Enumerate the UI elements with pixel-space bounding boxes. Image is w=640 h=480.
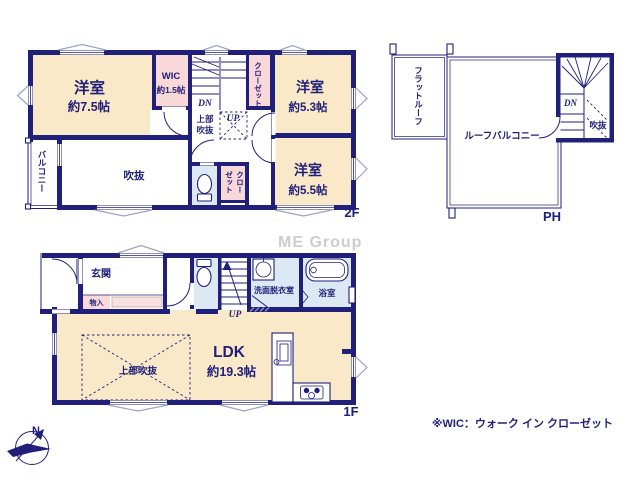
floor-plan-ph: フラットルーフ ルーフバルコニー DN 吹抜 PH (390, 44, 614, 224)
label-ph-void: 吹抜 (589, 120, 607, 130)
label-1f-ldk-name: LDK (213, 344, 246, 361)
label-2f-upper-void-2: 吹抜 (196, 125, 214, 135)
label-1f-upper-void: 上部吹抜 (119, 365, 158, 377)
floor-plan-drawing: 洋室 約7.5帖 WIC 約1.5帖 洋室 約5.3帖 洋室 約5.5帖 吹抜 … (0, 0, 640, 480)
shoe-counter-1f (112, 297, 162, 307)
floor-plan-page: 洋室 約7.5帖 WIC 約1.5帖 洋室 約5.3帖 洋室 約5.5帖 吹抜 … (0, 0, 640, 480)
label-2f-closet-small-col1: クロー (236, 171, 245, 194)
label-ph-roof-balcony: ルーフバルコニー (464, 130, 539, 142)
label-2f-balcony: バルコニー (37, 149, 47, 192)
label-1f-entrance: 玄関 (91, 267, 111, 280)
watermark: ME Group (278, 234, 362, 251)
label-floor-ph: PH (543, 209, 561, 224)
wic-note: ※WIC：ウォーク イン クローゼット (432, 416, 613, 430)
floor-plan-2f: 洋室 約7.5帖 WIC 約1.5帖 洋室 約5.3帖 洋室 約5.5帖 吹抜 … (18, 45, 368, 221)
label-2f-bedroom-a-size: 約7.5帖 (68, 99, 111, 114)
label-2f-wic-size: 約1.5帖 (157, 85, 186, 95)
label-2f-stairs-up: UP (227, 114, 240, 124)
label-2f-bedroom-c-name: 洋室 (294, 162, 322, 178)
label-1f-bathroom: 浴室 (318, 288, 336, 298)
label-1f-stairs-up: UP (229, 310, 242, 320)
label-2f-wic-name: WIC (162, 71, 181, 82)
label-2f-closet-hall: クローゼット (253, 62, 262, 108)
label-2f-bedroom-a-name: 洋室 (74, 78, 105, 97)
toilet-icon-2f (198, 175, 212, 202)
toilet-icon-1f (197, 260, 211, 287)
label-2f-upper-void-1: 上部 (196, 114, 214, 124)
label-ph-stairs-dn: DN (563, 98, 577, 108)
label-1f-ldk-size: 約19.3帖 (207, 364, 257, 379)
label-2f-bedroom-b-name: 洋室 (296, 79, 324, 95)
compass: N (7, 425, 51, 465)
label-1f-washroom: 洗面脱衣室 (254, 285, 294, 295)
label-floor-1f: 1F (343, 404, 358, 419)
floor-plan-1f: 玄関 物入 LDK 約19.3帖 上部吹抜 洗面脱衣室 浴室 UP 1F (40, 246, 367, 420)
label-floor-2f: 2F (344, 205, 359, 220)
label-2f-stairs-dn: DN (197, 99, 213, 109)
sink-icon-1f (253, 256, 274, 280)
label-2f-void: 吹抜 (124, 169, 145, 182)
label-1f-storage: 物入 (90, 298, 104, 307)
label-2f-closet-small-col2: ゼット (224, 170, 233, 194)
label-ph-flat-roof: フラットルーフ (414, 66, 424, 126)
label-2f-bedroom-b-size: 約5.3帖 (289, 100, 328, 114)
label-2f-bedroom-c-size: 約5.5帖 (289, 183, 328, 197)
compass-needle-body (7, 444, 51, 458)
stairs-1f (222, 261, 248, 305)
hall-2f (150, 110, 188, 136)
